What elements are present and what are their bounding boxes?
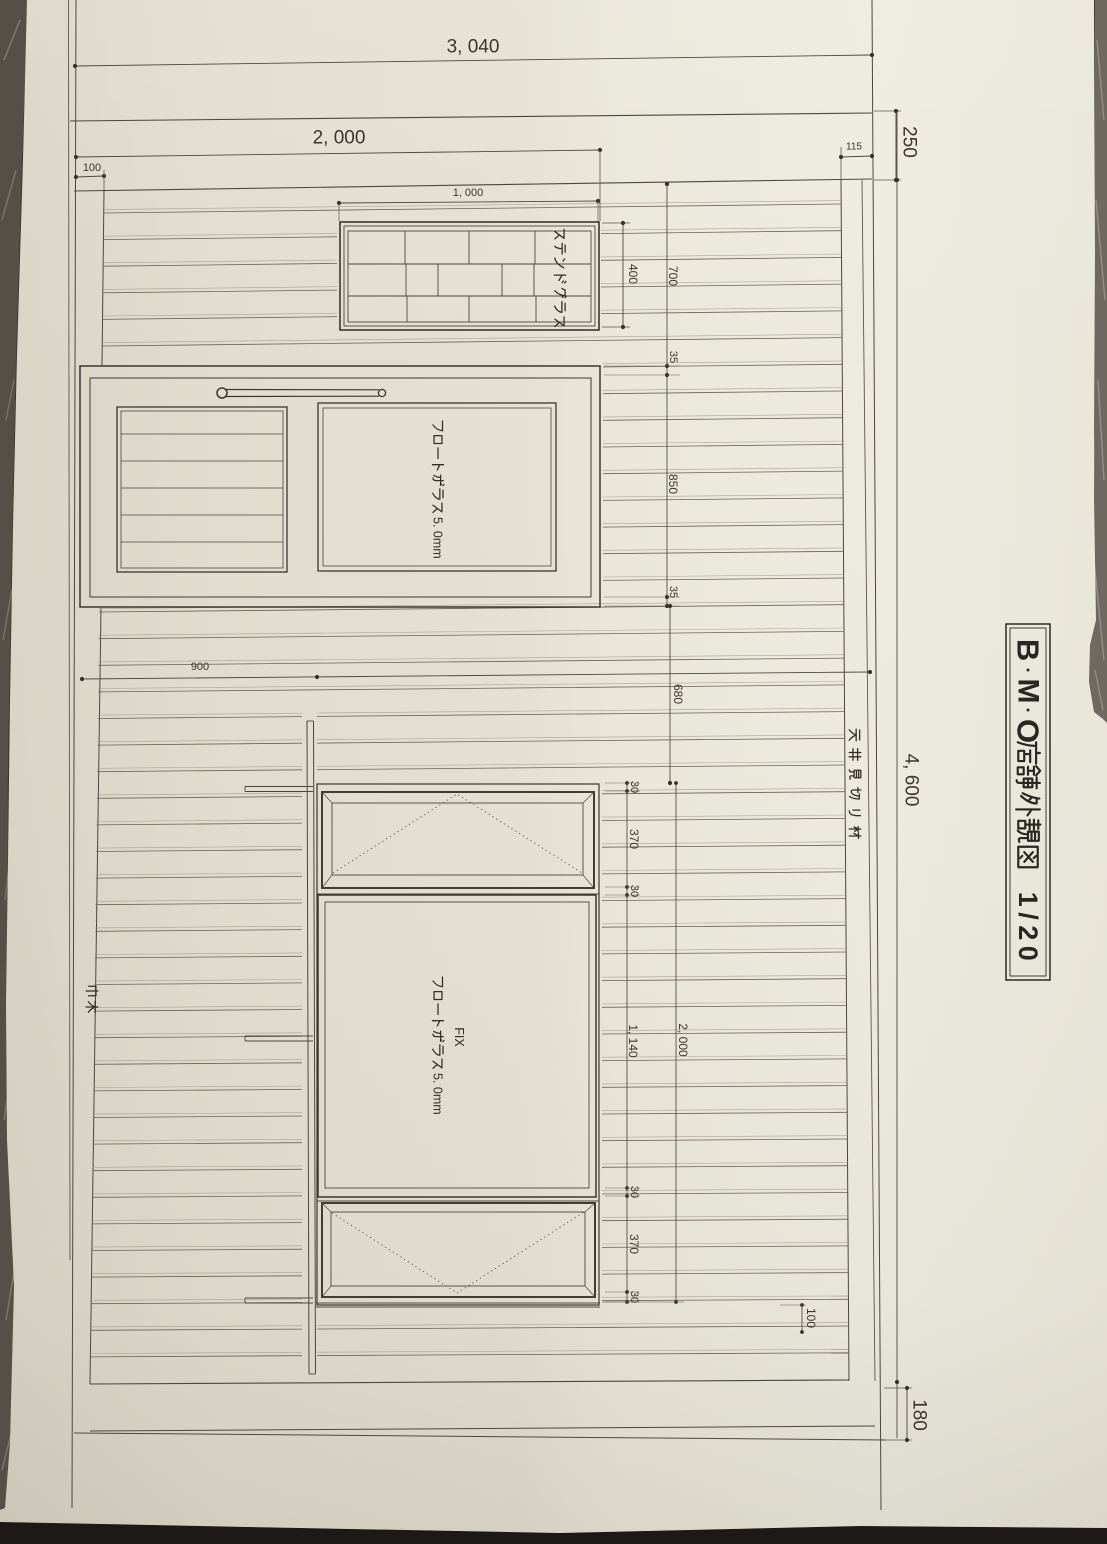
svg-text:400: 400	[626, 264, 640, 284]
svg-text:100: 100	[804, 1308, 818, 1328]
svg-text:680: 680	[671, 684, 685, 704]
svg-text:850: 850	[666, 474, 680, 494]
svg-text:5. 0mm: 5. 0mm	[431, 517, 445, 559]
svg-text:35: 35	[667, 586, 679, 598]
svg-text:30: 30	[628, 1186, 640, 1198]
svg-text:35: 35	[667, 351, 679, 363]
svg-text:3, 040: 3, 040	[447, 37, 500, 58]
svg-text:250: 250	[899, 126, 920, 158]
svg-text:O: O	[1011, 719, 1046, 743]
svg-text:700: 700	[666, 266, 680, 286]
svg-text:2, 000: 2, 000	[676, 1023, 690, 1057]
svg-text:115: 115	[846, 142, 862, 153]
svg-text:900: 900	[191, 661, 209, 673]
svg-text:2, 000: 2, 000	[313, 128, 366, 149]
svg-text:1, 000: 1, 000	[453, 187, 484, 199]
svg-text:100: 100	[83, 162, 101, 174]
svg-text:30: 30	[628, 1291, 640, 1303]
svg-text:B: B	[1011, 639, 1046, 661]
svg-text:30: 30	[628, 885, 640, 897]
svg-text:370: 370	[627, 829, 641, 849]
svg-text:180: 180	[909, 1399, 930, 1431]
svg-text:M: M	[1012, 679, 1045, 704]
svg-text:4, 600: 4, 600	[901, 754, 922, 807]
svg-text:370: 370	[627, 1234, 641, 1254]
svg-text:30: 30	[628, 781, 640, 793]
svg-text:1/20: 1/20	[1013, 892, 1043, 967]
svg-text:5. 0mm: 5. 0mm	[431, 1073, 445, 1115]
svg-text:FIX: FIX	[452, 1027, 466, 1047]
svg-text:1, 140: 1, 140	[626, 1024, 640, 1058]
